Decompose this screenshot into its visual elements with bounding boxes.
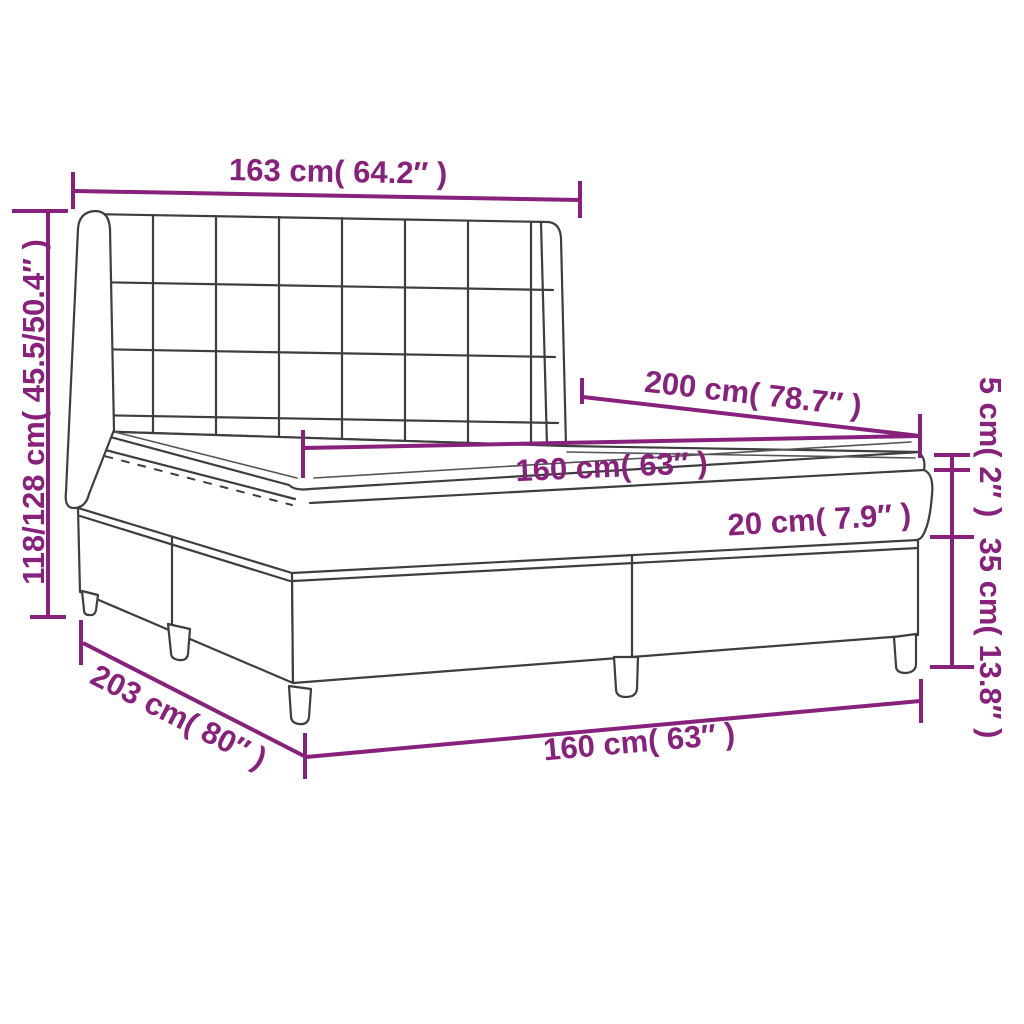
headboard <box>88 214 566 446</box>
dim-label-topper-height: 5 cm( 2″ ) <box>973 377 1008 518</box>
dim-label-headboard-width: 163 cm( 64.2″ ) <box>229 152 448 191</box>
leg-front-middle <box>614 657 638 697</box>
leg-mid-left <box>168 624 190 660</box>
leg-front-right <box>894 634 916 673</box>
leg-back-left <box>82 591 98 615</box>
bed-dimension-diagram: 163 cm( 64.2″ ) 118/128 cm( 45.5/50.4″ )… <box>0 0 1024 1024</box>
leg-front-left <box>289 686 311 724</box>
dim-label-headboard-height: 118/128 cm( 45.5/50.4″ ) <box>16 239 51 585</box>
dim-label-base-height: 35 cm( 13.8″ ) <box>973 538 1008 739</box>
diagram-canvas: 163 cm( 64.2″ ) 118/128 cm( 45.5/50.4″ )… <box>0 0 1024 1024</box>
